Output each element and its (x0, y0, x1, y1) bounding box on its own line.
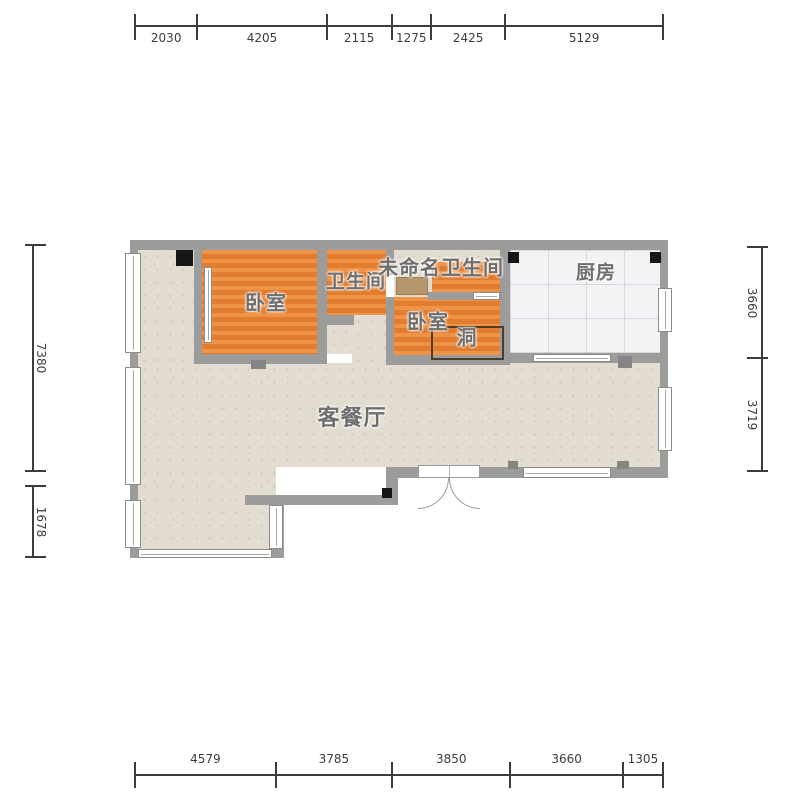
dim-tick (25, 485, 46, 487)
dim-label: 2030 (151, 31, 182, 45)
wall-bathroom1-bottom (327, 315, 354, 325)
wall-pillar (508, 461, 518, 469)
entry-door-divider (449, 466, 450, 477)
room-label-bedroom1: 卧室 (245, 287, 287, 316)
wall-pillar (617, 461, 629, 469)
dim-tick (25, 244, 46, 246)
dim-label: 1678 (34, 506, 48, 537)
hallway-floor (352, 315, 386, 363)
dim-tick (326, 14, 328, 40)
dim-tick (430, 14, 432, 40)
dim-label: 1275 (396, 31, 427, 45)
window-left-middle (125, 367, 141, 485)
room-label-living-dining: 客餐厅 (317, 400, 386, 432)
dim-label: 2115 (344, 31, 375, 45)
room-label-bedroom2: 卧室 (407, 306, 449, 335)
dim-tick (747, 357, 768, 359)
living-floor-extension (138, 467, 276, 549)
window-left-upper (125, 253, 141, 353)
window-right-kitchen (658, 288, 672, 332)
dim-line (761, 247, 763, 358)
dim-line (135, 774, 663, 776)
dim-label: 1305 (628, 752, 659, 766)
dim-tick (662, 14, 664, 40)
window-extension-right (269, 505, 283, 549)
room-label-kitchen: 厨房 (576, 258, 616, 285)
window-left-lower (125, 500, 141, 548)
column-marker (176, 250, 193, 266)
wall-bedroom1-left (194, 250, 202, 354)
column-marker (382, 488, 392, 498)
dim-tick (134, 14, 136, 40)
window-extension-bottom (138, 549, 272, 558)
dim-tick (747, 470, 768, 472)
room-label-hole: 洞 (457, 322, 478, 351)
dim-tick (391, 762, 393, 788)
dim-label: 2425 (453, 31, 484, 45)
door-swing-arc-right (449, 478, 480, 509)
dim-label: 3850 (436, 752, 467, 766)
window-kitchen-bottom (533, 354, 611, 362)
dim-tick (509, 762, 511, 788)
dim-label: 5129 (569, 31, 600, 45)
window-right-living (658, 387, 672, 451)
window-bathroom2 (473, 292, 500, 300)
door-swing-arc-left (418, 478, 449, 509)
dim-label: 3660 (551, 752, 582, 766)
dim-tick (25, 470, 46, 472)
wall-bathroom2-divider (428, 292, 473, 300)
dim-label: 3660 (745, 287, 759, 318)
dim-tick (196, 14, 198, 40)
dim-tick (662, 762, 664, 788)
dim-tick (25, 556, 46, 558)
dim-label: 4579 (190, 752, 221, 766)
wall-connector (386, 467, 398, 505)
dim-tick (275, 762, 277, 788)
wall-top (130, 240, 668, 250)
dim-label: 3719 (745, 399, 759, 430)
wall-pillar (251, 360, 266, 369)
living-floor-main (138, 363, 660, 467)
wall-pillar (618, 356, 632, 368)
wall-step (245, 495, 398, 505)
floor-plan: 卧室 卫生间 未命名卫生间 卧室 洞 厨房 客餐厅 20304205211512… (0, 0, 800, 800)
room-label-bathroom1: 卫生间 (326, 267, 386, 294)
column-marker (650, 252, 661, 263)
dim-tick (747, 246, 768, 248)
hallway-floor-pocket (327, 325, 352, 354)
dim-tick (391, 14, 393, 40)
wardrobe-strip (204, 267, 212, 343)
dim-label: 4205 (247, 31, 278, 45)
dim-label: 7380 (34, 343, 48, 374)
dim-tick (134, 762, 136, 788)
column-marker (508, 252, 519, 263)
dim-label: 3785 (319, 752, 350, 766)
dim-line (135, 25, 663, 27)
entry-door (418, 465, 480, 478)
window-bottom-wall (523, 467, 611, 478)
dim-tick (622, 762, 624, 788)
dim-tick (504, 14, 506, 40)
dim-line (761, 358, 763, 471)
room-label-unnamed-bathroom: 未命名卫生间 (378, 252, 504, 281)
